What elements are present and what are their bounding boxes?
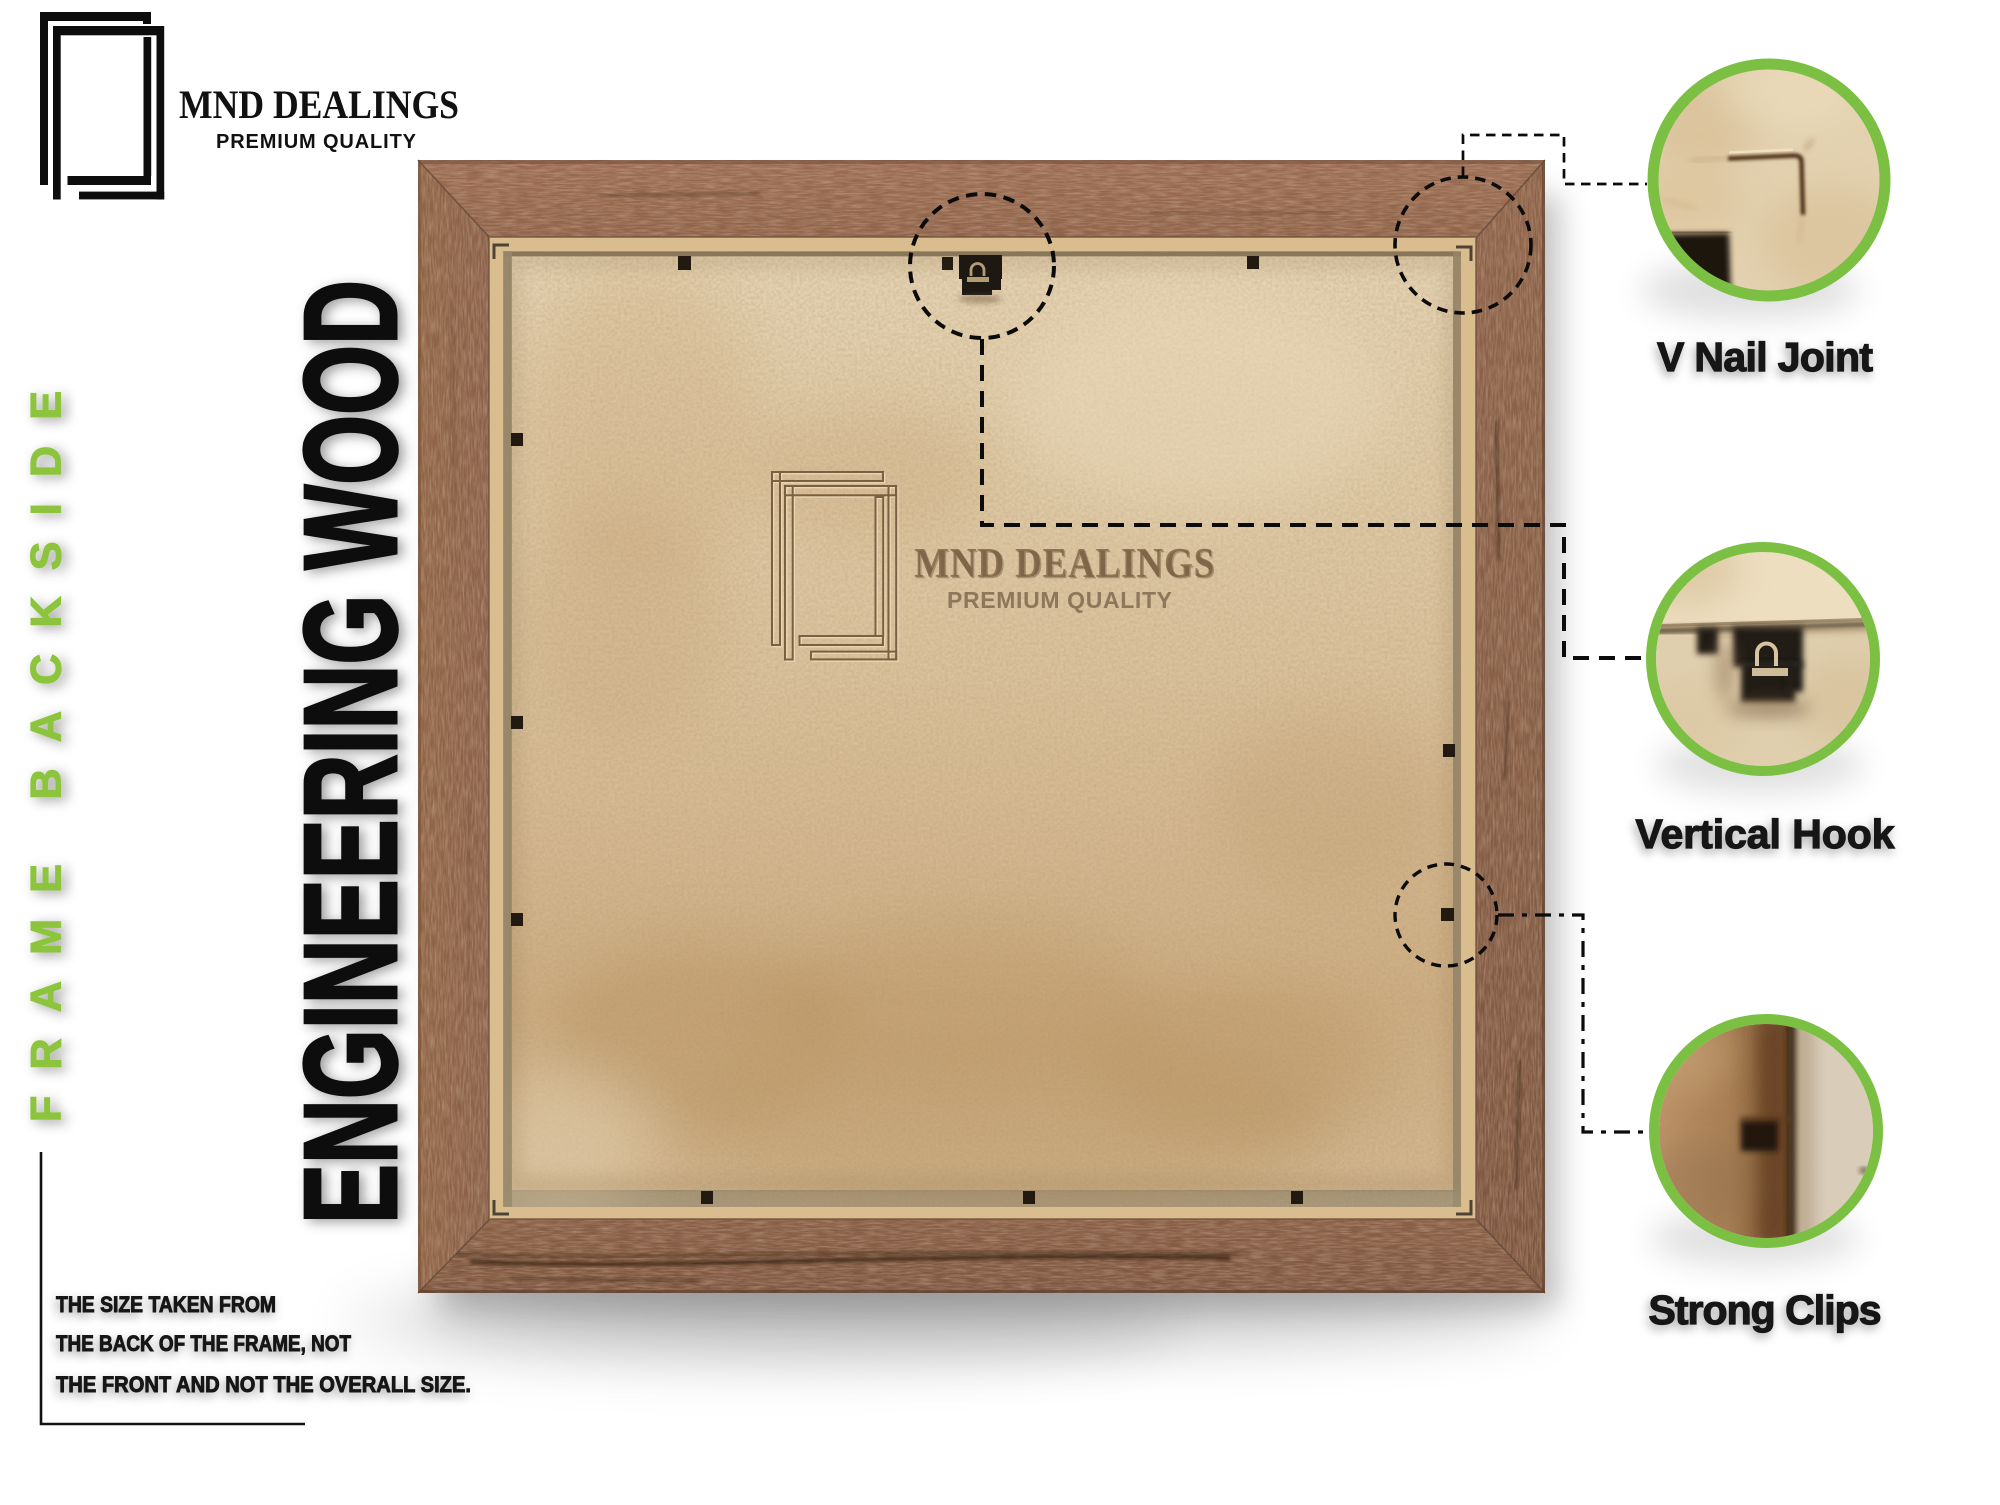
svg-text:THE SIZE TAKEN FROM: THE SIZE TAKEN FROM — [56, 1292, 276, 1317]
svg-text:Vertical Hook: Vertical Hook — [1636, 811, 1895, 857]
svg-text:ENGINEERING WOOD: ENGINEERING WOOD — [277, 280, 424, 1224]
svg-text:THE BACK OF THE FRAME, NOT: THE BACK OF THE FRAME, NOT — [56, 1331, 351, 1356]
svg-text:V Nail Joint: V Nail Joint — [1657, 334, 1873, 380]
svg-text:MND DEALINGS: MND DEALINGS — [916, 543, 1217, 589]
svg-text:MND DEALINGS: MND DEALINGS — [179, 82, 459, 127]
svg-text:PREMIUM QUALITY: PREMIUM QUALITY — [216, 131, 417, 153]
svg-text:Strong Clips: Strong Clips — [1649, 1287, 1882, 1333]
svg-text:THE FRONT AND NOT THE OVERALL: THE FRONT AND NOT THE OVERALL SIZE. — [56, 1372, 471, 1397]
svg-text:PREMIUM QUALITY: PREMIUM QUALITY — [947, 587, 1172, 613]
